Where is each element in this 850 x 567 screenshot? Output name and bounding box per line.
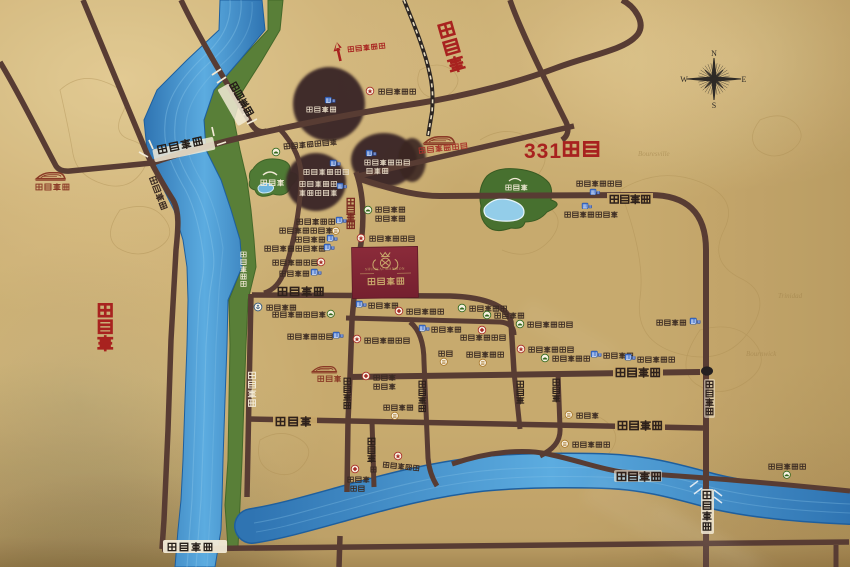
svg-text:331: 331 [524,140,562,163]
svg-text:E: E [742,75,747,84]
svg-text:Bouresville: Bouresville [638,150,670,158]
svg-text:SHUNKAI MANSION: SHUNKAI MANSION [365,267,405,272]
svg-text:N: N [711,49,717,58]
svg-text:S: S [712,101,716,110]
svg-text:Bournwick: Bournwick [746,350,777,358]
svg-text:Trinidad: Trinidad [778,292,803,300]
svg-text:W: W [680,75,688,84]
